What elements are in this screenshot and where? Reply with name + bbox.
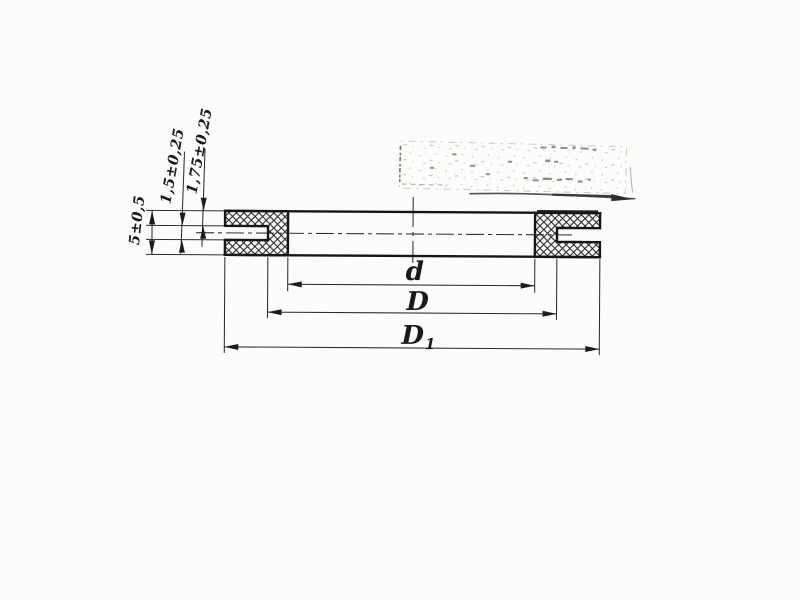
scanned-drawing-page: 5±0,5 1,5±0,25 1,75±0,25 d D — [0, 0, 800, 600]
paper-background — [0, 0, 800, 600]
engineering-drawing-grommet-section: 5±0,5 1,5±0,25 1,75±0,25 d D — [0, 0, 800, 600]
stamp-smudge-dark — [552, 195, 615, 197]
dim-label-d: d — [406, 257, 424, 287]
dim-label-D1-base: D — [400, 321, 424, 351]
dim-label-D1-subscript: 1 — [425, 335, 436, 353]
dim-label-D: D — [405, 287, 429, 317]
